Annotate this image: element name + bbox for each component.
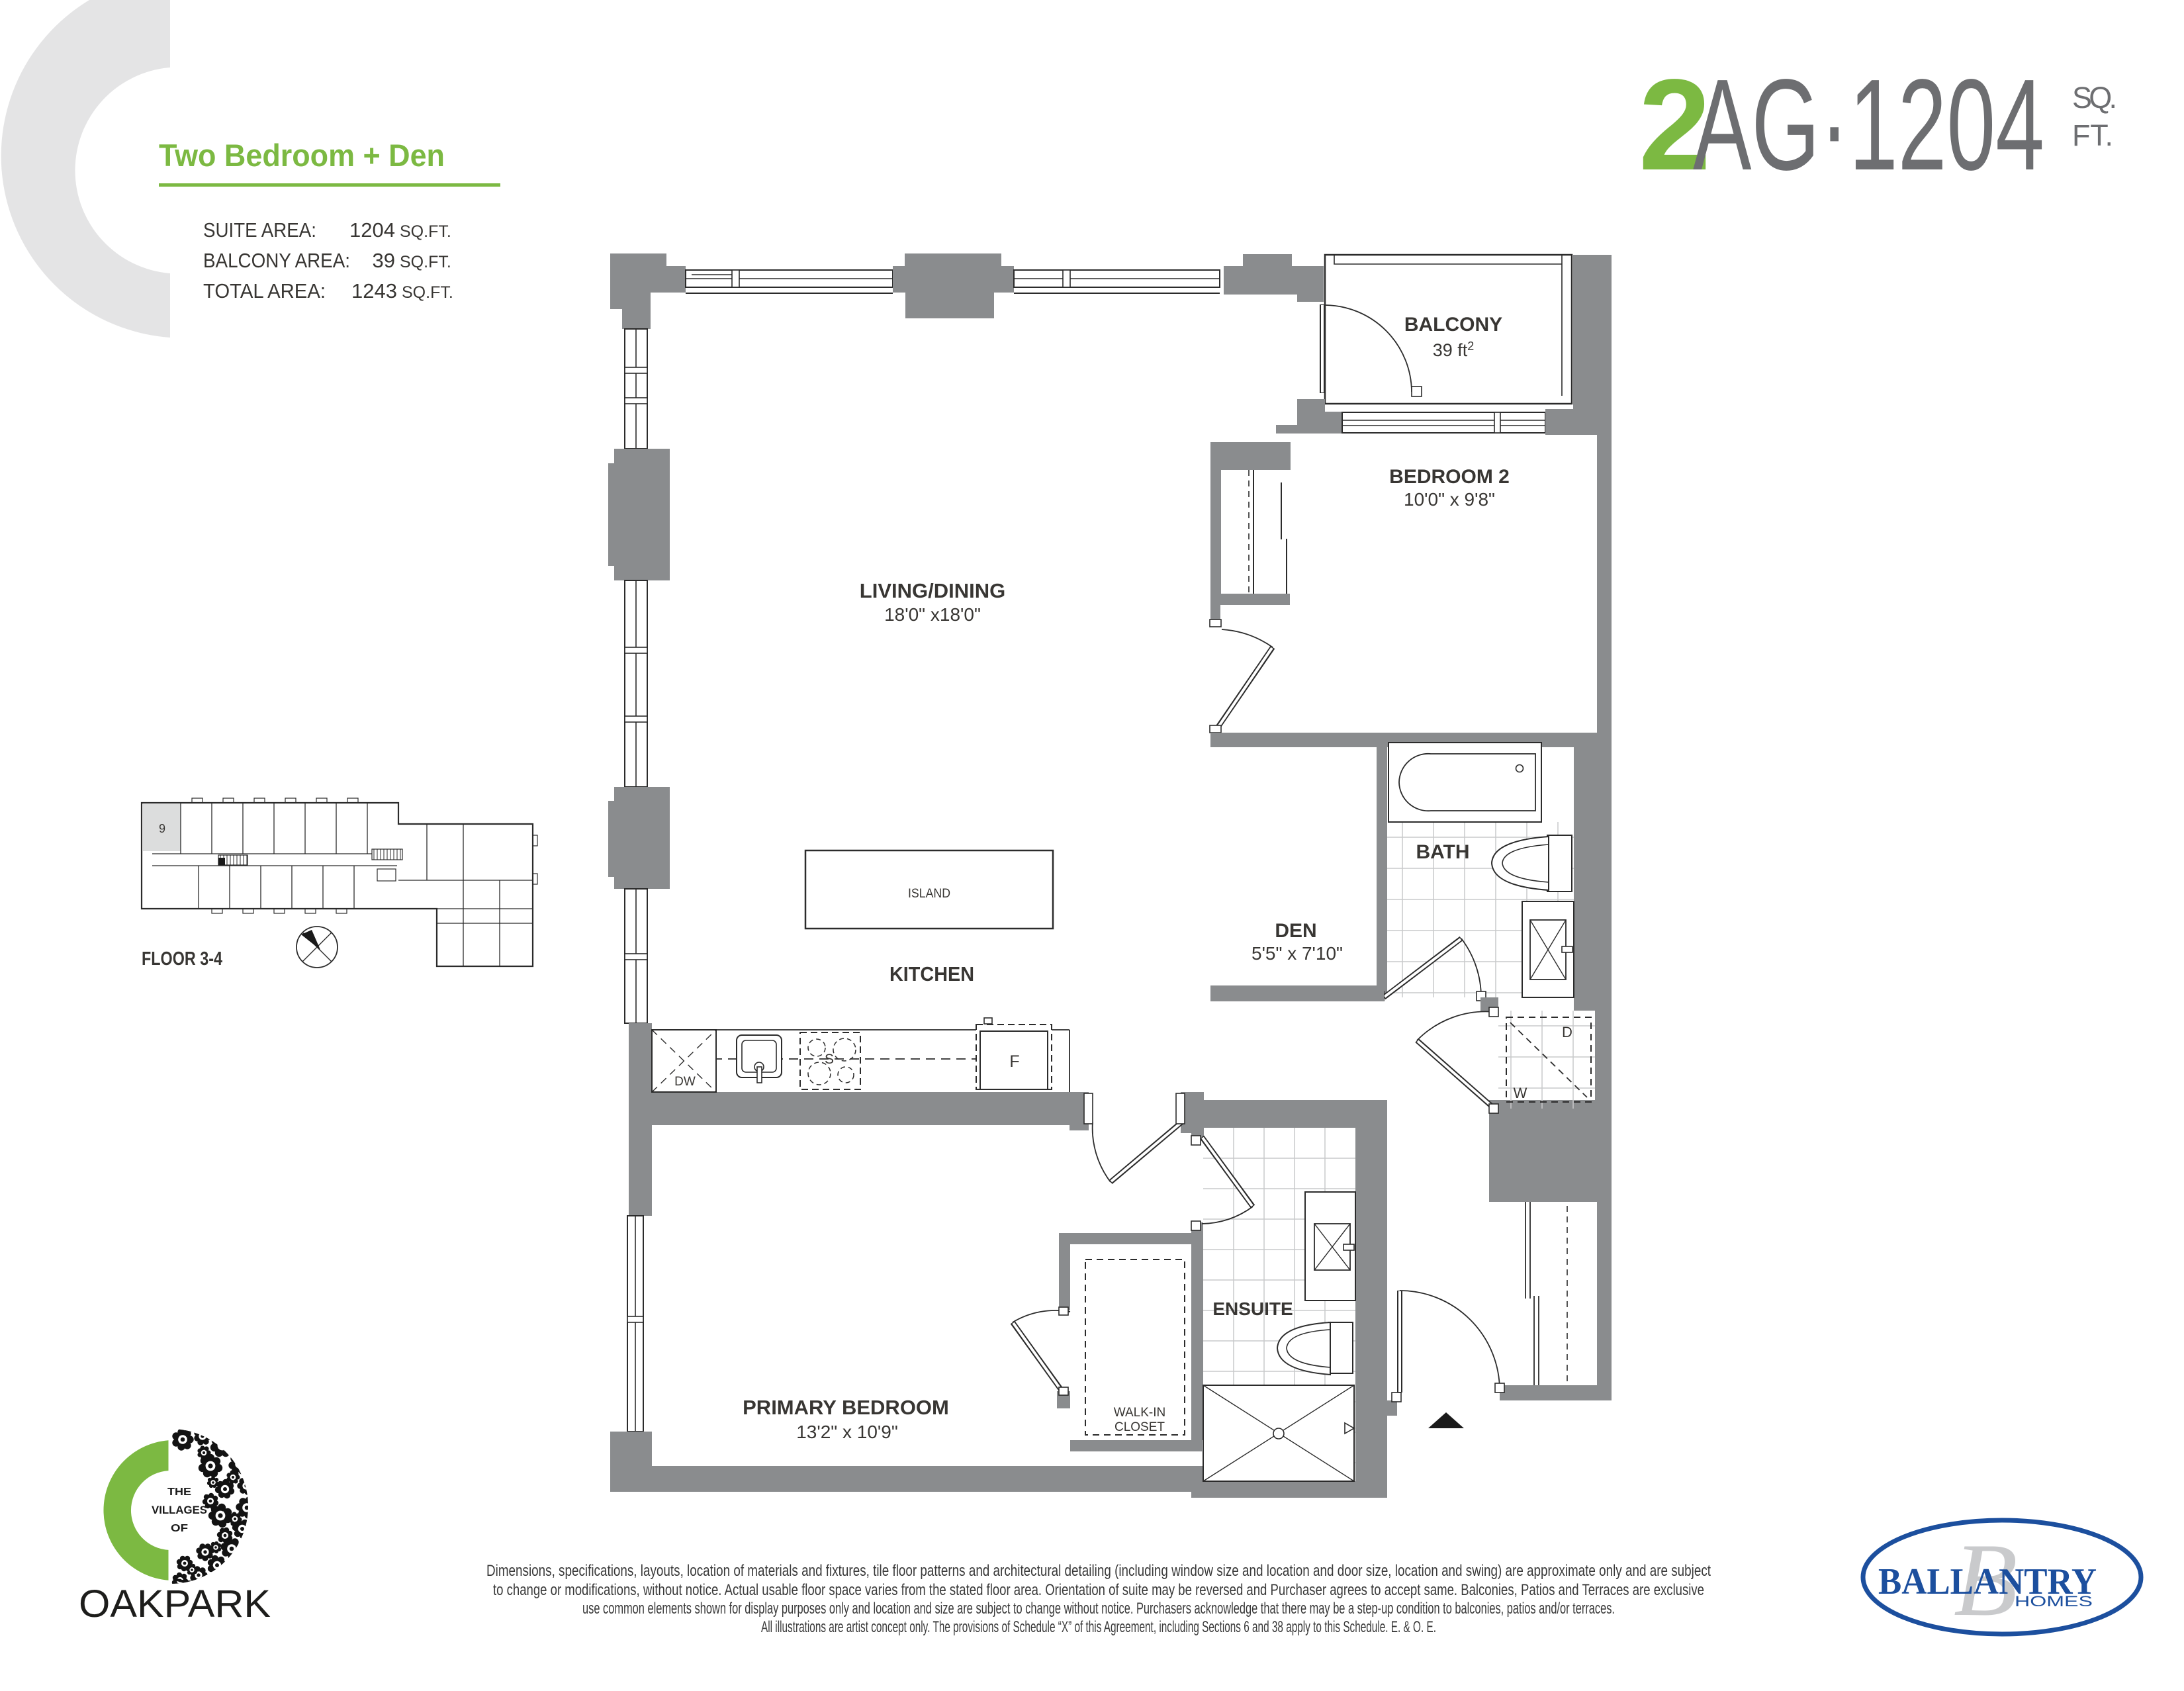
svg-text:5'5" x 7'10": 5'5" x 7'10" <box>1251 943 1343 964</box>
svg-text:PRIMARY BEDROOM: PRIMARY BEDROOM <box>743 1396 949 1419</box>
svg-text:1243: 1243 <box>351 279 397 302</box>
svg-text:SUITE AREA:: SUITE AREA: <box>203 218 316 242</box>
svg-text:KITCHEN: KITCHEN <box>889 962 974 985</box>
svg-text:OAKPARK: OAKPARK <box>79 1582 271 1625</box>
svg-text:9: 9 <box>159 822 165 835</box>
svg-text:10'0" x 9'8": 10'0" x 9'8" <box>1404 489 1495 510</box>
svg-text:DEN: DEN <box>1275 920 1316 942</box>
svg-text:S: S <box>825 1052 834 1067</box>
svg-text:ISLAND: ISLAND <box>908 887 950 901</box>
svg-text:LIVING/DINING: LIVING/DINING <box>860 579 1005 602</box>
svg-text:All illustrations are artist c: All illustrations are artist concept onl… <box>761 1618 1436 1636</box>
svg-text:use common elements shown for: use common elements shown for display pu… <box>582 1600 1615 1618</box>
svg-text:18'0" x18'0": 18'0" x18'0" <box>884 604 981 625</box>
svg-text:BEDROOM 2: BEDROOM 2 <box>1389 466 1510 488</box>
svg-text:HOMES: HOMES <box>2015 1593 2093 1610</box>
svg-text:CLOSET: CLOSET <box>1115 1420 1165 1434</box>
svg-text:AG·1204: AG·1204 <box>1693 52 2044 197</box>
svg-text:SQ.FT.: SQ.FT. <box>400 253 451 271</box>
svg-text:SQ.FT.: SQ.FT. <box>400 222 451 241</box>
svg-text:WALK-IN: WALK-IN <box>1114 1406 1165 1420</box>
svg-text:SQ.: SQ. <box>2072 81 2117 114</box>
svg-text:Dimensions, specifications, la: Dimensions, specifications, layouts, loc… <box>486 1562 1711 1580</box>
svg-text:W: W <box>1514 1085 1527 1101</box>
svg-text:13'2" x 10'9": 13'2" x 10'9" <box>796 1422 898 1442</box>
svg-text:FT.: FT. <box>2072 118 2113 152</box>
svg-text:SQ.FT.: SQ.FT. <box>402 283 453 302</box>
svg-text:DW: DW <box>674 1075 696 1089</box>
svg-text:F: F <box>1009 1052 1019 1071</box>
svg-text:FLOOR 3-4: FLOOR 3-4 <box>142 948 222 970</box>
svg-text:BATH: BATH <box>1416 841 1469 863</box>
svg-text:39: 39 <box>373 249 395 272</box>
svg-text:VILLAGES: VILLAGES <box>152 1504 207 1516</box>
svg-text:BALCONY: BALCONY <box>1404 314 1502 336</box>
svg-text:D: D <box>1562 1024 1572 1040</box>
svg-text:ENSUITE: ENSUITE <box>1212 1299 1293 1319</box>
svg-text:1204: 1204 <box>349 218 395 242</box>
svg-text:to change or modifications, wi: to change or modifications, without noti… <box>493 1581 1704 1599</box>
svg-text:Two Bedroom + Den: Two Bedroom + Den <box>159 138 445 173</box>
svg-text:OF: OF <box>171 1523 188 1534</box>
svg-text:BALCONY AREA:: BALCONY AREA: <box>203 249 350 272</box>
svg-text:THE: THE <box>167 1486 191 1498</box>
svg-text:TOTAL AREA:: TOTAL AREA: <box>203 279 326 302</box>
